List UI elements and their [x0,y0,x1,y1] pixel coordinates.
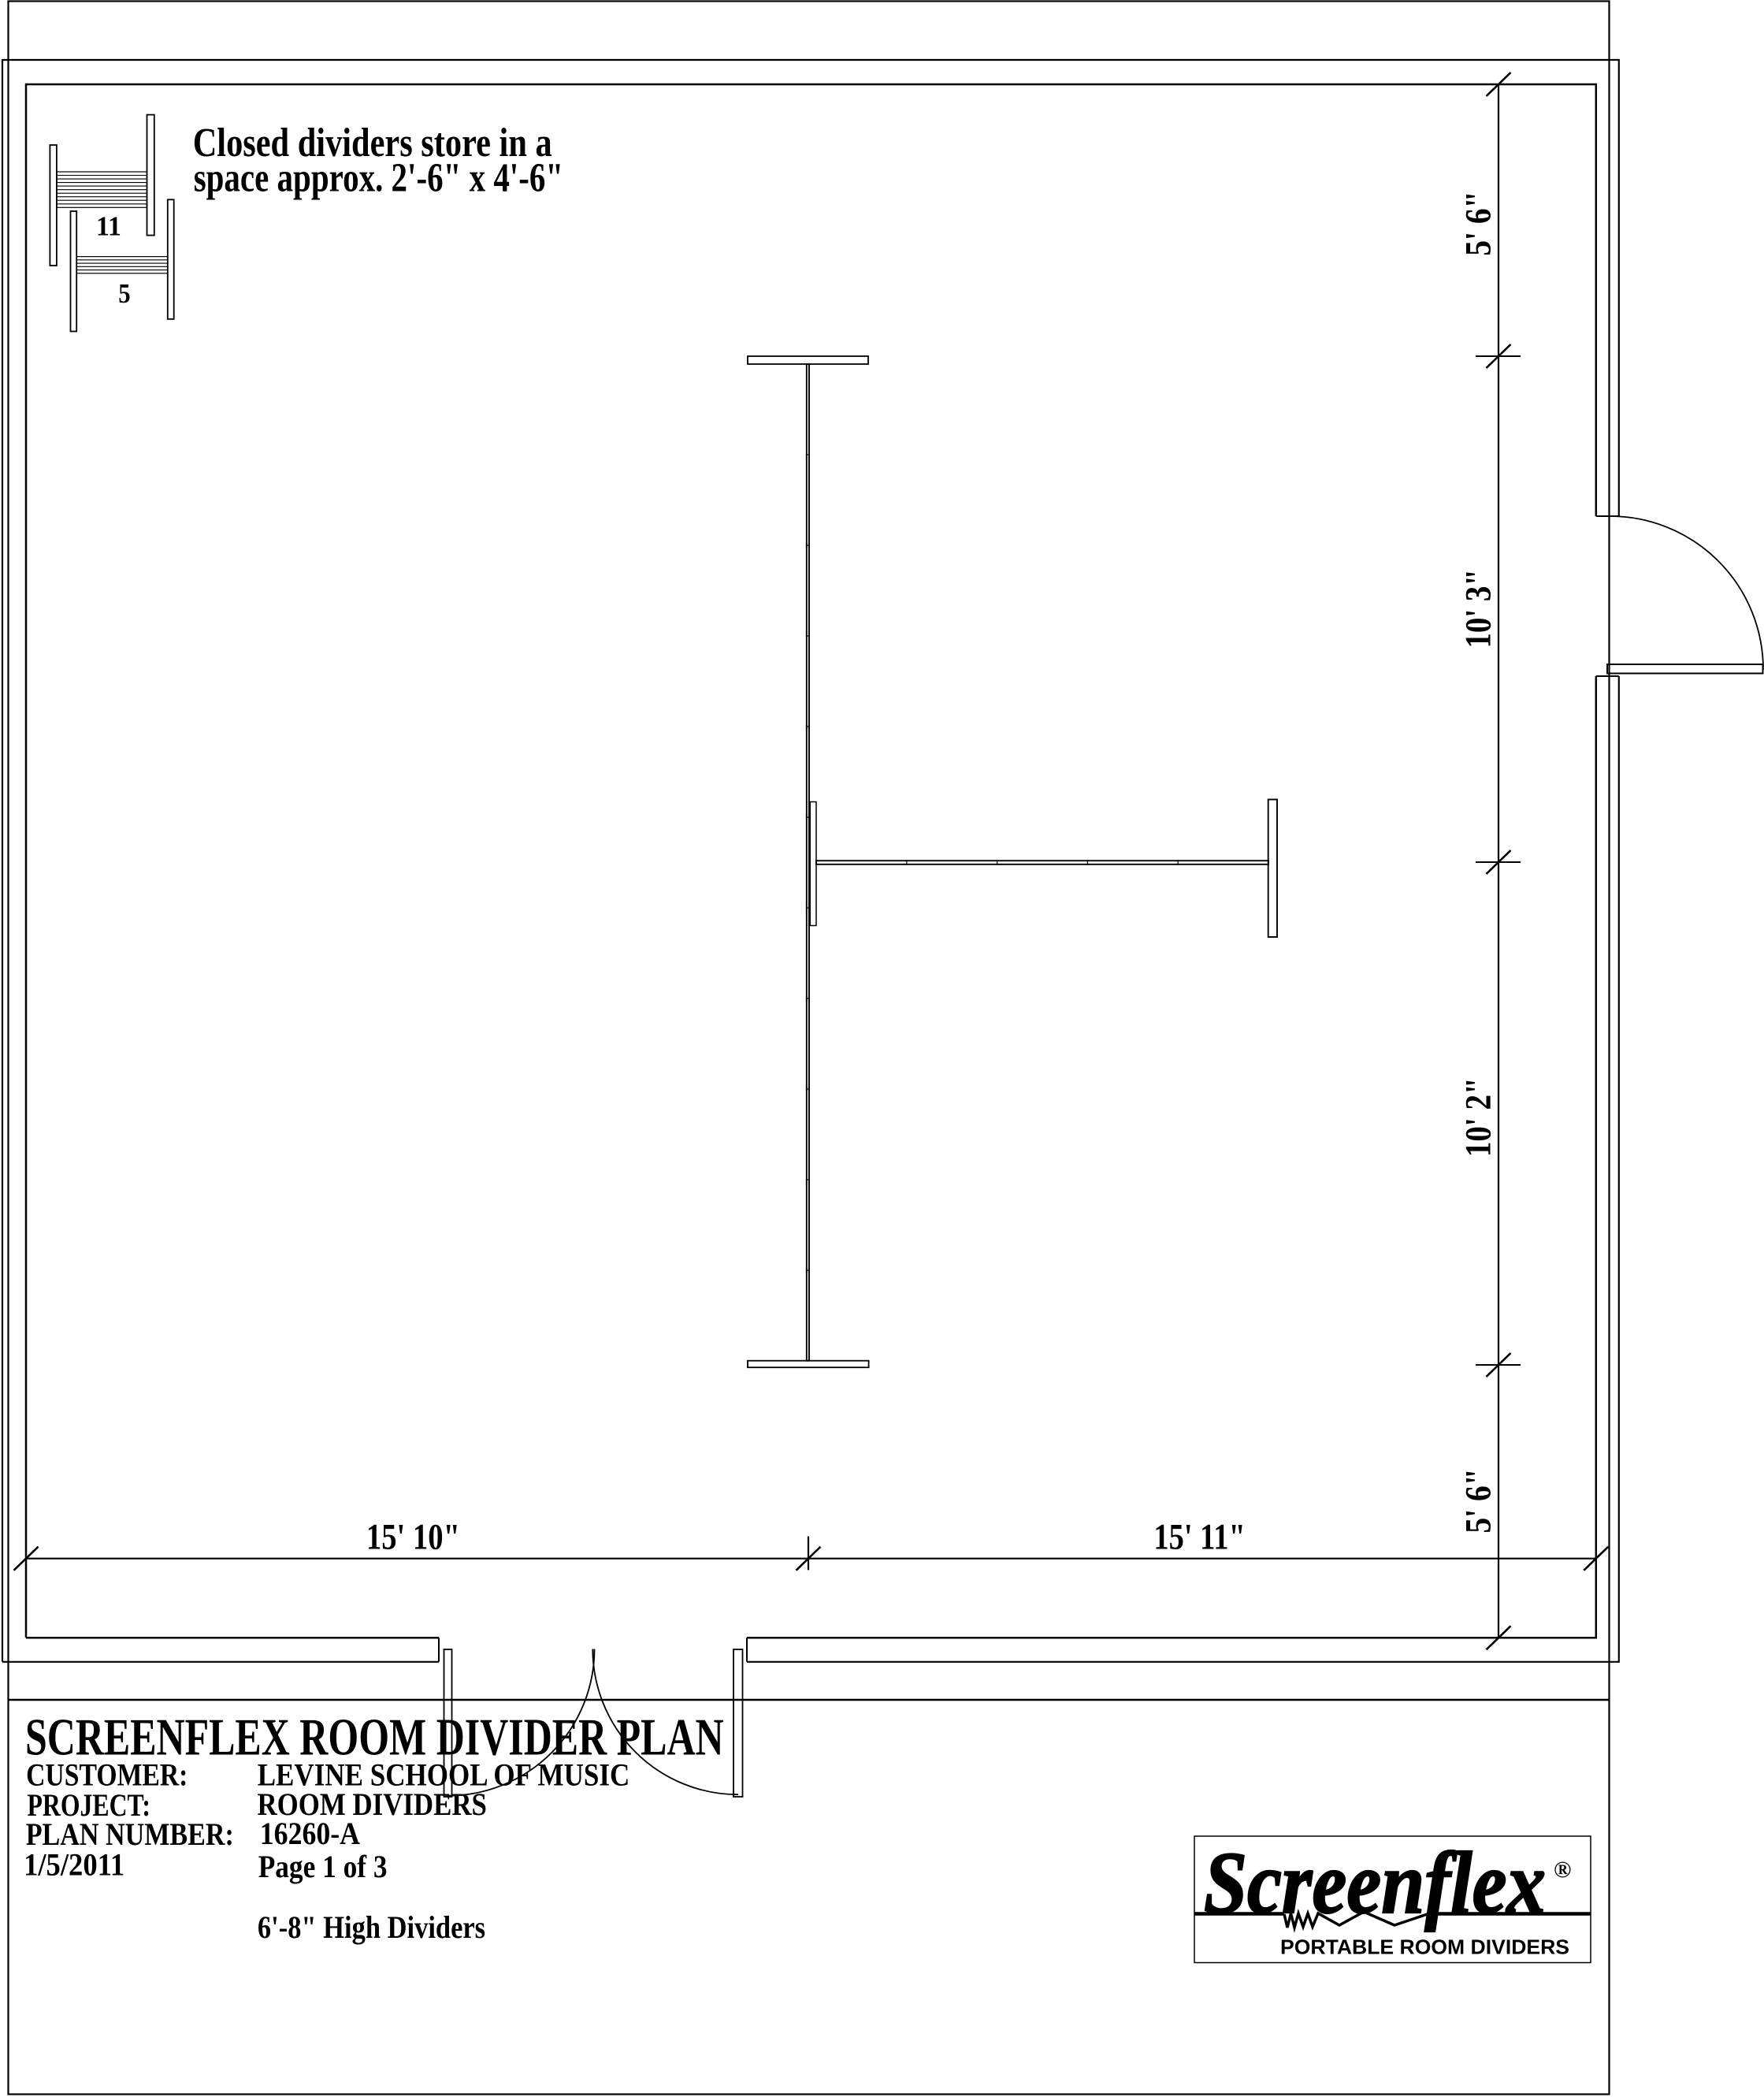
svg-text:1/5/2011: 1/5/2011 [24,1847,124,1883]
svg-text:Screenflex: Screenflex [1204,1835,1546,1932]
svg-text:6'-8" High Dividers: 6'-8" High Dividers [258,1909,485,1945]
svg-text:11: 11 [96,210,121,241]
svg-text:5' 6": 5' 6" [1458,1468,1499,1533]
svg-text:10' 3": 10' 3" [1458,569,1499,648]
svg-text:PORTABLE ROOM DIVIDERS: PORTABLE ROOM DIVIDERS [1280,1935,1569,1959]
svg-text:space approx. 2'-6" x 4'-6": space approx. 2'-6" x 4'-6" [194,156,563,201]
svg-text:15' 11": 15' 11" [1153,1517,1245,1558]
svg-text:15' 10": 15' 10" [366,1517,460,1558]
svg-text:10' 2": 10' 2" [1458,1077,1499,1157]
svg-text:5: 5 [118,278,130,309]
svg-text:16260-A: 16260-A [260,1816,360,1851]
svg-text:®: ® [1554,1857,1571,1883]
svg-text:5' 6": 5' 6" [1458,191,1499,255]
svg-text:Page 1 of 3: Page 1 of 3 [258,1849,388,1884]
